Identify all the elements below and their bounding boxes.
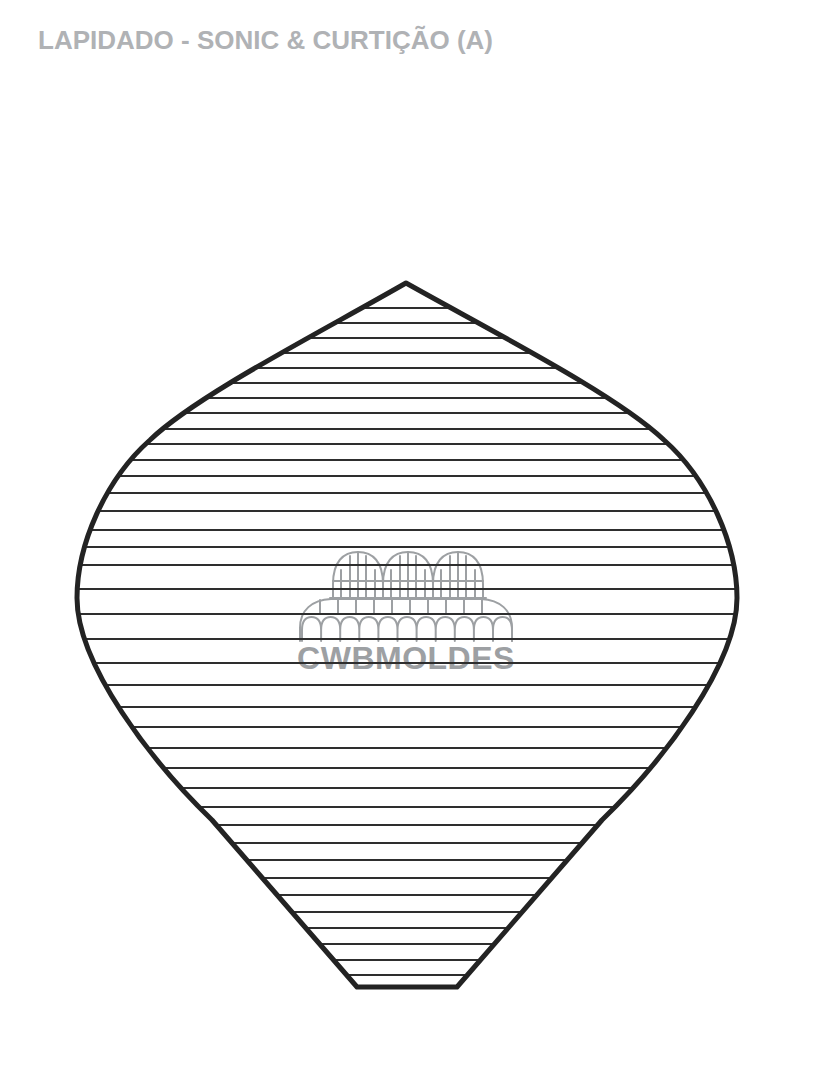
shape-outline [77, 283, 737, 987]
watermark-brand-text: CWBMOLDES [297, 640, 515, 676]
mold-template-page: LAPIDADO - SONIC & CURTIÇÃO (A) [0, 0, 813, 1081]
mold-shape-canvas: CWBMOLDES [0, 0, 813, 1081]
